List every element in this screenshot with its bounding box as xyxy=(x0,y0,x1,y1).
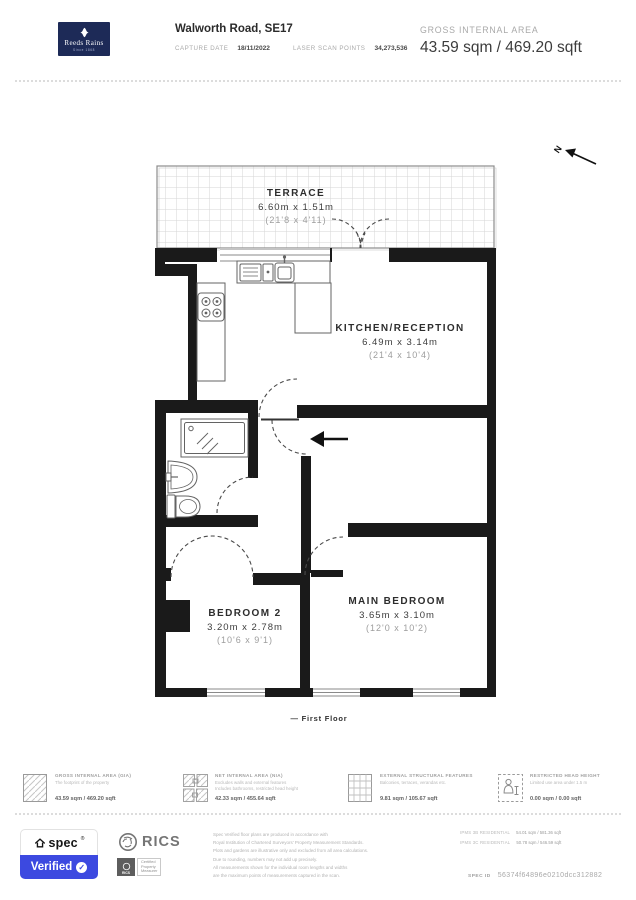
floorplan-page: Reeds Rains Since 1868 Walworth Road, SE… xyxy=(0,0,636,900)
spec-id-label: SPEC ID xyxy=(468,874,491,879)
legal-line-1: Spec Verified floor plans are produced i… xyxy=(213,831,463,839)
ipms-3b-value: 54.01 sqm / 581.36 sqft xyxy=(516,830,561,835)
legend-nia-desc1: Excludes walls and external features xyxy=(215,780,355,785)
rics-mini-lion-icon xyxy=(122,862,131,871)
main-bedroom-dims-m: 3.65m x 3.10m xyxy=(359,610,435,621)
legal-line-6: are the maximum points of measurements c… xyxy=(213,872,463,880)
rics-wordmark: RICS xyxy=(142,834,181,850)
entrance-door-swing xyxy=(272,420,306,454)
spec-brand-label: spec xyxy=(49,836,78,850)
legend-nia: NET INTERNAL AREA (NIA) Excludes walls a… xyxy=(215,773,355,807)
ipms-3c-value: 50.78 sqm / 546.59 sqft xyxy=(516,840,561,845)
bedroom2-dims-ft: (10'6 x 9'1) xyxy=(217,635,273,645)
kitchen-window xyxy=(220,248,330,262)
rics-logo-block: RICS RICS Certified Property Measurer xyxy=(117,831,181,876)
main-bedroom-dims-ft: (12'0 x 10'2) xyxy=(366,623,428,633)
ipms-3c-row: IPMS 3C RESIDENTIAL 50.78 sqm / 546.59 s… xyxy=(460,840,561,845)
ipms-3b-row: IPMS 3B RESIDENTIAL 54.01 sqm / 581.36 s… xyxy=(460,830,561,835)
ipms-3c-label: IPMS 3C RESIDENTIAL xyxy=(460,840,510,845)
compass-north-icon: N xyxy=(552,144,596,164)
verified-check-icon: ✓ xyxy=(76,862,87,873)
spec-verified-badge: spec® Verified ✓ xyxy=(20,829,98,879)
spec-house-icon xyxy=(34,837,46,849)
legend-restricted-value: 0.00 sqm / 0.00 sqft xyxy=(530,796,581,802)
legend-nia-value: 42.33 sqm / 455.64 sqft xyxy=(215,796,276,802)
legend-restricted-desc: Limited use area under 1.5 m xyxy=(530,780,636,785)
kitchen-dims-ft: (21'4 x 10'4) xyxy=(369,350,431,360)
kitchen-name: KITCHEN/RECEPTION xyxy=(335,323,464,334)
legend-restricted: RESTRICTED HEAD HEIGHT Limited use area … xyxy=(530,773,636,807)
rics-cert-text: Certified Property Measurer xyxy=(137,858,161,876)
legend-gia-title: GROSS INTERNAL AREA (GIA) xyxy=(55,773,195,778)
bedroom2-name: BEDROOM 2 xyxy=(208,608,281,619)
floor-label: — First Floor xyxy=(290,714,347,723)
ipms-3b-label: IPMS 3B RESIDENTIAL xyxy=(460,830,510,835)
legal-disclaimer: Spec Verified floor plans are produced i… xyxy=(213,831,463,880)
main-bedroom-window-1 xyxy=(313,688,360,697)
toilet-icon xyxy=(167,495,200,518)
spec-id-row: SPEC ID 56374f64896e0210dcc312882 xyxy=(468,872,602,879)
legend-nia-title: NET INTERNAL AREA (NIA) xyxy=(215,773,355,778)
rics-certified-badge: RICS Certified Property Measurer xyxy=(117,858,181,876)
rics-cert-line3: Measurer xyxy=(141,869,157,874)
ipms-measurements: IPMS 3B RESIDENTIAL 54.01 sqm / 581.36 s… xyxy=(460,830,561,850)
entrance-arrow-icon xyxy=(310,431,348,447)
legal-line-4: Due to rounding, numbers may not add up … xyxy=(213,856,463,864)
grid-square-icon xyxy=(348,774,372,802)
legend-nia-desc2: Includes bathrooms, restricted head heig… xyxy=(215,786,355,791)
spec-id-value: 56374f64896e0210dcc312882 xyxy=(498,872,603,879)
bedroom2-window xyxy=(207,688,265,697)
compass-n-label: N xyxy=(552,144,564,155)
bedroom2-door-swing xyxy=(171,536,253,577)
terrace-name: TERRACE xyxy=(267,188,325,199)
terrace-dims-ft: (21'8 x 4'11) xyxy=(265,215,326,225)
rics-mini-logo: RICS xyxy=(117,858,135,876)
legend-gia-desc: The footprint of the property xyxy=(55,780,195,785)
main-bedroom-window-2 xyxy=(413,688,460,697)
legal-line-3: Plots and gardens are illustrative only … xyxy=(213,847,463,855)
hatched-puzzle-icon xyxy=(183,774,208,802)
terrace-dims-m: 6.60m x 1.51m xyxy=(258,202,334,213)
legend-gia-value: 43.59 sqm / 469.20 sqft xyxy=(55,796,116,802)
dishwasher-icon xyxy=(240,264,273,281)
footer-divider xyxy=(15,813,621,815)
legend-restricted-title: RESTRICTED HEAD HEIGHT xyxy=(530,773,636,778)
legend-external-value: 9.81 sqm / 105.67 sqft xyxy=(380,796,438,802)
floor-plan-svg: N TERRACE 6.60m x 1.51m (21'8 x 4'11) KI… xyxy=(0,0,636,830)
hob-icon xyxy=(198,293,224,321)
bedroom2-dims-m: 3.20m x 2.78m xyxy=(207,622,283,633)
legend-gia: GROSS INTERNAL AREA (GIA) The footprint … xyxy=(55,773,195,807)
shower-icon xyxy=(181,419,248,457)
spec-brand-box: spec® xyxy=(20,829,98,855)
bathroom-sink-icon xyxy=(166,461,197,493)
kitchen-dims-m: 6.49m x 3.14m xyxy=(362,337,438,348)
main-bedroom-name: MAIN BEDROOM xyxy=(348,596,445,607)
spec-reg-mark: ® xyxy=(81,836,85,842)
bathroom-door-swing xyxy=(217,477,253,513)
spec-verified-box: Verified ✓ xyxy=(20,855,98,879)
kitchen-door-swing xyxy=(259,379,297,417)
legal-line-2: Royal Institution of Chartered Surveyors… xyxy=(213,839,463,847)
rics-mini-label: RICS xyxy=(122,871,130,875)
rics-lion-icon xyxy=(117,831,139,853)
hatched-square-icon xyxy=(23,774,47,802)
legal-line-5: All measurements shown for the individua… xyxy=(213,864,463,872)
person-dashed-square-icon xyxy=(498,774,523,802)
spec-verified-label: Verified xyxy=(31,861,73,873)
